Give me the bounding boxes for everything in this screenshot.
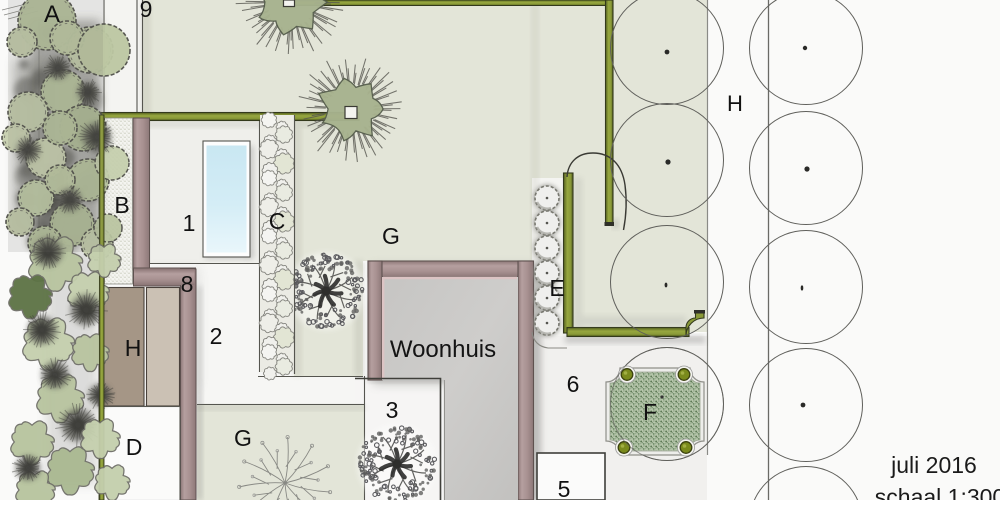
- svg-text:juli 2016: juli 2016: [890, 452, 977, 478]
- svg-text:6: 6: [567, 371, 580, 397]
- svg-text:3: 3: [386, 397, 399, 423]
- svg-text:1: 1: [183, 210, 196, 236]
- svg-text:8: 8: [181, 271, 194, 297]
- svg-text:H: H: [125, 335, 142, 361]
- svg-text:A: A: [44, 1, 60, 28]
- svg-text:5: 5: [558, 476, 571, 500]
- svg-text:E: E: [549, 275, 564, 301]
- svg-text:C: C: [269, 208, 286, 234]
- svg-text:G: G: [382, 223, 400, 249]
- svg-text:F: F: [643, 399, 657, 425]
- svg-text:9: 9: [140, 0, 153, 22]
- svg-text:Woonhuis: Woonhuis: [390, 336, 496, 363]
- svg-text:2: 2: [210, 323, 223, 349]
- svg-text:schaal 1:300: schaal 1:300: [875, 484, 1000, 500]
- svg-text:D: D: [126, 434, 143, 460]
- svg-text:H: H: [727, 91, 743, 116]
- svg-text:B: B: [114, 192, 129, 218]
- svg-text:G: G: [234, 425, 252, 451]
